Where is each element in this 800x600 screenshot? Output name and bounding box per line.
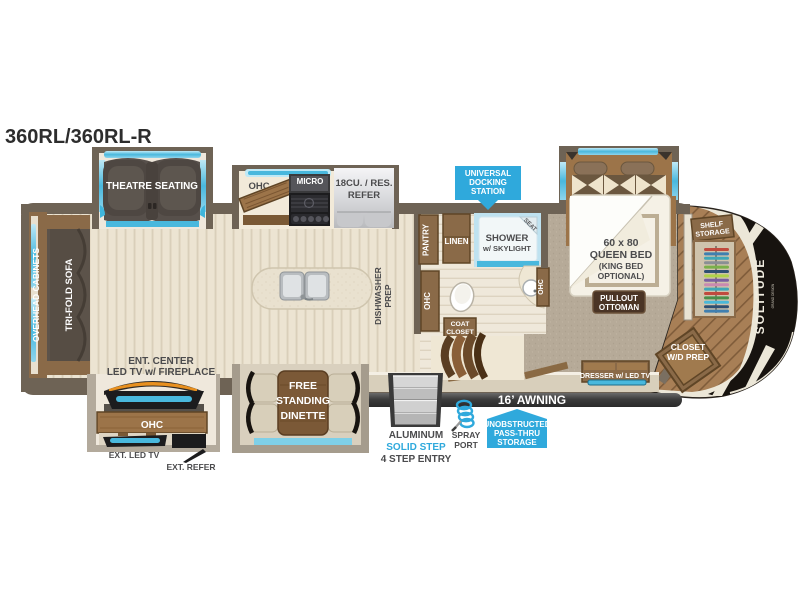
svg-text:18CU. / RES.: 18CU. / RES. [335,178,392,189]
svg-text:LINEN: LINEN [445,237,469,246]
svg-text:GRAND DESIGN: GRAND DESIGN [771,283,775,308]
svg-text:PANTRY: PANTRY [422,223,431,256]
svg-text:OVERHEAD CABINETS: OVERHEAD CABINETS [31,248,41,342]
svg-text:CLOSET: CLOSET [671,342,706,352]
svg-text:60 x 80: 60 x 80 [603,237,638,249]
svg-text:(KING BED: (KING BED [599,261,643,271]
svg-text:DISHWASHER: DISHWASHER [373,267,383,325]
svg-text:LED TV w/ FIREPLACE: LED TV w/ FIREPLACE [107,367,216,378]
svg-text:MICRO: MICRO [297,177,324,186]
svg-text:PORT: PORT [454,440,478,450]
svg-text:EXT. LED TV: EXT. LED TV [109,450,160,460]
svg-text:W/D PREP: W/D PREP [667,352,709,362]
svg-text:QUEEN BED: QUEEN BED [590,249,653,261]
svg-text:REFER: REFER [348,190,380,201]
svg-text:ENT. CENTER: ENT. CENTER [128,356,194,367]
svg-text:PULLOUT: PULLOUT [600,294,638,303]
svg-text:SPRAY: SPRAY [452,430,481,440]
svg-text:STORAGE: STORAGE [497,438,537,447]
svg-text:4 STEP ENTRY: 4 STEP ENTRY [381,454,452,465]
svg-text:360RL/360RL-R: 360RL/360RL-R [5,126,152,148]
svg-text:DOCKING: DOCKING [469,178,507,187]
svg-text:SOLITUDE: SOLITUDE [753,258,767,335]
svg-text:SHOWER: SHOWER [486,233,529,244]
svg-text:DINETTE: DINETTE [281,410,326,422]
svg-text:SOLID STEP: SOLID STEP [386,442,446,453]
svg-text:TRI-FOLD SOFA: TRI-FOLD SOFA [64,258,75,331]
svg-text:PASS-THRU: PASS-THRU [494,429,540,438]
svg-text:OHC: OHC [141,420,163,431]
svg-text:OHC: OHC [423,292,432,310]
svg-text:EXT. REFER: EXT. REFER [166,462,215,472]
svg-text:ALUMINUM: ALUMINUM [389,430,443,441]
svg-text:OTTOMAN: OTTOMAN [599,303,640,312]
svg-text:OHC: OHC [538,279,545,295]
svg-text:COAT: COAT [451,321,471,328]
svg-text:THEATRE SEATING: THEATRE SEATING [106,180,198,192]
svg-text:UNIVERSAL: UNIVERSAL [465,169,511,178]
svg-text:DRESSER w/ LED TV: DRESSER w/ LED TV [580,373,650,380]
svg-text:STANDING: STANDING [276,395,330,407]
svg-text:FREE: FREE [289,380,317,392]
svg-text:PREP: PREP [383,284,393,307]
svg-text:16’ AWNING: 16’ AWNING [498,393,566,407]
svg-text:UNOBSTRUCTED: UNOBSTRUCTED [483,420,550,429]
svg-text:w/ SKYLIGHT: w/ SKYLIGHT [482,244,531,253]
svg-text:STATION: STATION [471,187,505,196]
svg-text:OPTIONAL): OPTIONAL) [598,271,645,281]
